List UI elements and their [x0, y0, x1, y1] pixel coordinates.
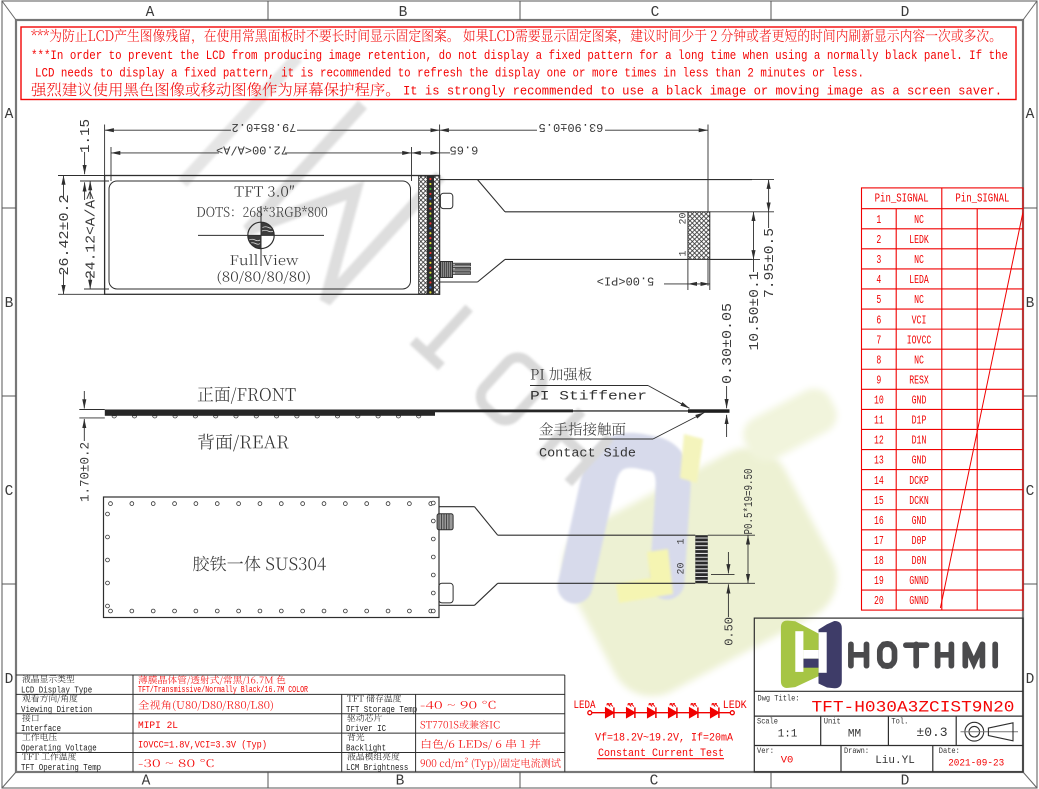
svg-text:17: 17: [874, 534, 884, 548]
svg-text:D1P: D1P: [912, 414, 927, 428]
svg-text:A: A: [5, 107, 14, 123]
svg-text:PI Stiffener: PI Stiffener: [530, 389, 647, 404]
svg-text:B: B: [399, 5, 408, 21]
svg-text:5.00<PI>: 5.00<PI>: [597, 274, 655, 288]
svg-text:RESX: RESX: [909, 373, 929, 387]
svg-text:Tol.: Tol.: [891, 717, 908, 727]
svg-text:D: D: [1026, 672, 1035, 688]
svg-text:D: D: [901, 5, 910, 21]
svg-text:63.90±0.5: 63.90±0.5: [539, 120, 604, 134]
svg-text:GNND: GNND: [909, 574, 929, 588]
svg-text:P0.5*19=9.50: P0.5*19=9.50: [742, 469, 756, 535]
svg-text:LCD needs to display a fixed p: LCD needs to display a fixed pattern, it…: [35, 66, 864, 81]
svg-text:Ver:: Ver:: [757, 746, 774, 756]
svg-text:26.42±0.2: 26.42±0.2: [58, 195, 73, 276]
svg-text:1:1: 1:1: [778, 729, 798, 741]
svg-text:NC: NC: [914, 213, 924, 227]
svg-text:4: 4: [876, 273, 881, 287]
svg-text:NC: NC: [914, 293, 924, 307]
svg-text:9: 9: [876, 373, 881, 387]
svg-text:TFT-H030A3ZCIST9N20: TFT-H030A3ZCIST9N20: [812, 698, 1015, 716]
svg-text:A: A: [1026, 107, 1035, 123]
svg-text:1: 1: [876, 213, 881, 227]
svg-text:Pin_SIGNAL: Pin_SIGNAL: [955, 192, 1009, 206]
svg-text:10: 10: [874, 394, 884, 408]
svg-text:15: 15: [874, 494, 884, 508]
svg-text:D0P: D0P: [912, 534, 927, 548]
svg-text:D: D: [901, 774, 910, 789]
svg-text:MIPI 2L: MIPI 2L: [138, 721, 178, 732]
svg-text:1.70±0.2: 1.70±0.2: [78, 442, 92, 502]
svg-text:***In order to prevent the LCD: ***In order to prevent the LCD from prod…: [31, 48, 1008, 63]
svg-text:Drawn:: Drawn:: [844, 746, 869, 756]
svg-text:7.95±0.5: 7.95±0.5: [763, 228, 778, 298]
svg-text:14: 14: [874, 474, 884, 488]
svg-text:TFT Storage Temp: TFT Storage Temp: [346, 704, 417, 715]
svg-text:IOVCC: IOVCC: [907, 333, 932, 347]
svg-text:3: 3: [876, 253, 881, 267]
svg-text:6: 6: [876, 313, 881, 327]
svg-text:DCKP: DCKP: [909, 474, 929, 488]
svg-text:Contact Side: Contact Side: [539, 446, 636, 461]
svg-text:1: 1: [679, 250, 690, 256]
svg-text:20: 20: [874, 594, 884, 608]
svg-text:19: 19: [874, 574, 884, 588]
svg-text:2021-09-23: 2021-09-23: [948, 758, 1004, 770]
svg-text:C: C: [651, 5, 660, 21]
svg-text:B: B: [1026, 296, 1035, 312]
svg-text:Interface: Interface: [21, 723, 61, 734]
svg-text:Dwg Title:: Dwg Title:: [758, 693, 800, 703]
svg-text:D1N: D1N: [912, 434, 927, 448]
svg-text:0.30±0.05: 0.30±0.05: [721, 303, 736, 384]
svg-text:13: 13: [874, 454, 884, 468]
svg-text:GND: GND: [912, 394, 927, 408]
svg-text:Liu.YL: Liu.YL: [875, 755, 915, 767]
svg-text:1: 1: [677, 538, 688, 544]
svg-text:GND: GND: [912, 454, 927, 468]
svg-text:V0: V0: [781, 755, 794, 767]
svg-text:18: 18: [874, 554, 884, 568]
svg-text:MM: MM: [848, 729, 861, 741]
svg-text:Vf=18.2V~19.2V, If=20mA: Vf=18.2V~19.2V, If=20mA: [595, 733, 733, 745]
svg-text:LCD Display Type: LCD Display Type: [21, 684, 92, 695]
svg-text:79.85±0.2: 79.85±0.2: [232, 120, 297, 134]
svg-text:Unit: Unit: [824, 717, 841, 727]
svg-text:LEDA: LEDA: [574, 700, 596, 712]
svg-text:It is strongly recommended to: It is strongly recommended to use a blac…: [403, 84, 1002, 99]
svg-text:5: 5: [876, 293, 881, 307]
svg-text:7: 7: [876, 333, 881, 347]
svg-text:GND: GND: [912, 514, 927, 528]
svg-text:Pin_SIGNAL: Pin_SIGNAL: [875, 192, 929, 206]
svg-text:IOVCC=1.8V,VCI=3.3V (Typ): IOVCC=1.8V,VCI=3.3V (Typ): [138, 740, 267, 752]
svg-text:A: A: [142, 774, 151, 789]
svg-text:20: 20: [677, 562, 688, 574]
svg-text:Driver IC: Driver IC: [346, 723, 386, 734]
svg-text:24.12<A/A>: 24.12<A/A>: [85, 191, 100, 279]
svg-text:LEDA: LEDA: [909, 273, 929, 287]
svg-text:Date:: Date:: [939, 746, 960, 756]
svg-text:20: 20: [679, 212, 690, 224]
svg-text:Scale: Scale: [757, 717, 778, 727]
svg-text:2: 2: [876, 233, 881, 247]
svg-text:6.65: 6.65: [450, 143, 479, 157]
svg-text:GNND: GNND: [909, 594, 929, 608]
svg-text:72.00<A/A>: 72.00<A/A>: [216, 143, 288, 157]
svg-text:12: 12: [874, 434, 884, 448]
svg-text:8: 8: [876, 353, 881, 367]
svg-text:LEDK: LEDK: [723, 700, 747, 712]
svg-text:DCKN: DCKN: [909, 494, 929, 508]
svg-text:±0.3: ±0.3: [916, 725, 947, 740]
svg-text:NC: NC: [914, 253, 924, 267]
svg-text:D: D: [5, 672, 14, 688]
svg-text:16: 16: [874, 514, 884, 528]
svg-text:Constant Current Test: Constant Current Test: [598, 748, 724, 760]
svg-text:VCI: VCI: [912, 313, 927, 327]
svg-text:B: B: [396, 774, 405, 789]
svg-text:0.50: 0.50: [722, 617, 736, 646]
svg-text:10.50±0.1: 10.50±0.1: [748, 272, 763, 351]
svg-text:C: C: [5, 484, 14, 500]
svg-text:Backlight: Backlight: [346, 743, 386, 754]
svg-text:11: 11: [874, 414, 884, 428]
svg-text:TFT Operating Temp: TFT Operating Temp: [21, 762, 101, 773]
svg-text:TFT/Transmissive/Normally Blac: TFT/Transmissive/Normally Black/16.7M CO…: [138, 685, 308, 695]
svg-text:LEDK: LEDK: [909, 233, 929, 247]
svg-text:D0N: D0N: [912, 554, 927, 568]
svg-text:C: C: [650, 774, 659, 789]
svg-text:Viewing Diretion: Viewing Diretion: [21, 704, 92, 715]
svg-text:A: A: [146, 5, 155, 21]
svg-text:LCM Brightness: LCM Brightness: [346, 762, 408, 773]
svg-text:NC: NC: [914, 353, 924, 367]
svg-text:B: B: [5, 296, 14, 312]
svg-text:Operating Voltage: Operating Voltage: [21, 743, 97, 754]
svg-text:1.15: 1.15: [79, 119, 94, 153]
svg-text:C: C: [1026, 484, 1035, 500]
